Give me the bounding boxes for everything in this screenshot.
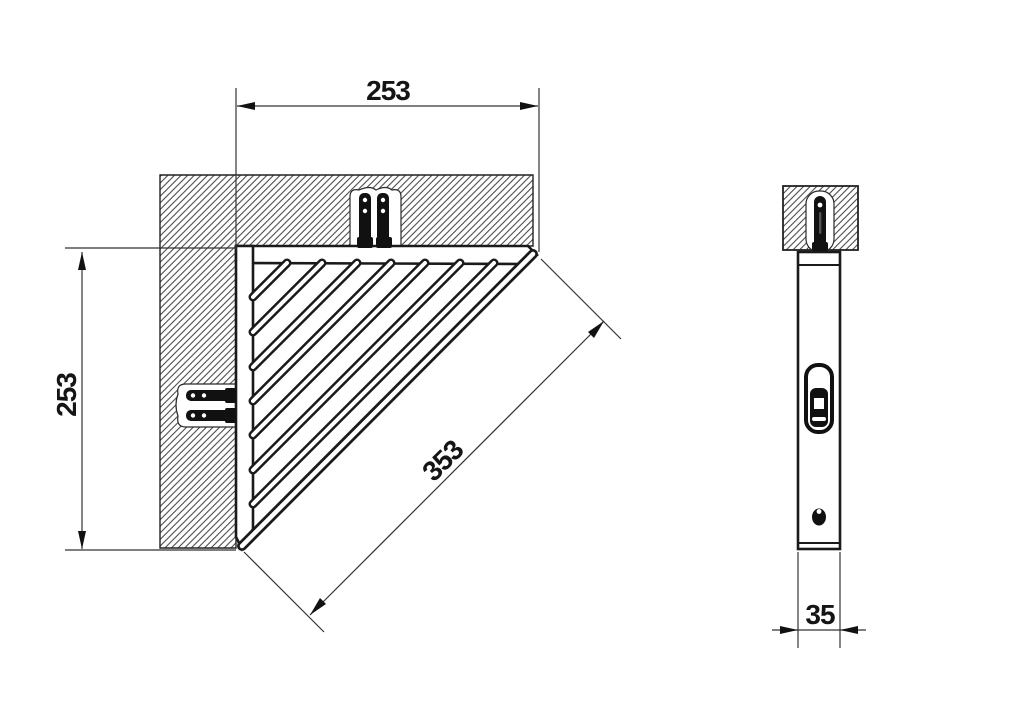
dim-height-label: 253 <box>51 373 82 417</box>
dim-diagonal-arrow-bottom <box>310 598 326 615</box>
side-mounting-pin <box>812 196 828 251</box>
dim-diagonal-arrow-top <box>588 321 604 338</box>
dim-diagonal-label: 353 <box>416 434 469 487</box>
dim-width-label: 253 <box>366 75 410 106</box>
side-view: 35 <box>772 186 866 648</box>
dim-depth-arrow-left <box>780 626 798 634</box>
top-bracket-plate <box>350 188 401 247</box>
drawing-canvas: 253 253 353 <box>0 0 1011 704</box>
wall-hatch-plan <box>160 175 533 548</box>
keyhole-slot <box>806 365 832 432</box>
dim-width-arrow-right <box>520 102 538 110</box>
dim-depth-arrow-right <box>840 626 858 634</box>
dim-height-arrow-top <box>78 252 86 270</box>
technical-drawing: 253 253 353 <box>0 0 1011 704</box>
bottom-hole <box>812 509 826 526</box>
dim-width-arrow-left <box>237 102 255 110</box>
dim-depth-label: 35 <box>805 599 835 630</box>
wall-section-plan <box>160 175 533 548</box>
dim-height-arrow-bottom <box>78 531 86 549</box>
plan-view: 253 253 353 <box>51 75 621 632</box>
